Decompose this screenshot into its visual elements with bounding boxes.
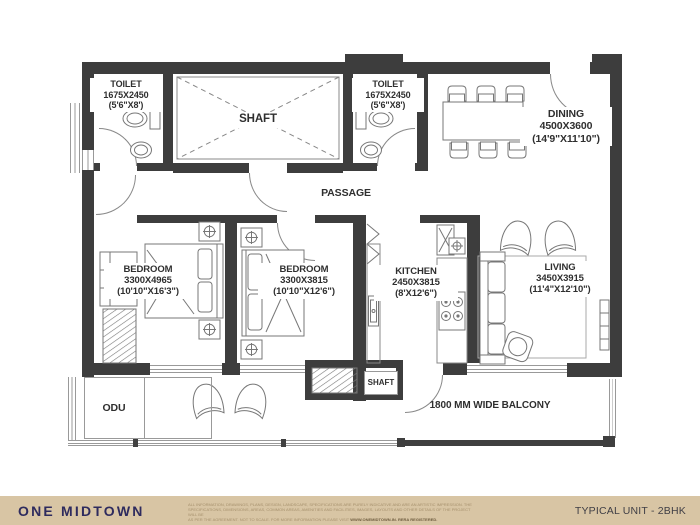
shaft-wall [305,360,403,368]
odu-divider [144,377,145,439]
room-dim-mm: 4500X3600 [520,120,612,132]
wall-segment [467,215,480,363]
disclaimer-line: SPECIFICATIONS, DIMENSIONS, AREAS, COMMO… [188,507,480,517]
disclaimer-link: WWW.ONEMIDTOWN.IN. RERA REGISTERED. [350,517,437,522]
room-name: PASSAGE [308,187,384,199]
room-name: ODU [88,402,140,414]
side-table-icon [241,340,262,359]
kitchen-counter-icon [367,244,467,363]
room-name: SHAFT [368,378,395,387]
balcony-chair-icon [234,381,269,418]
dining-label: DINING 4500X3600 (14'9"X11'10") [520,107,612,146]
living-label: LIVING 3450X3915 (11'4"X12'10") [510,261,610,297]
shaft-wall [305,360,312,400]
odu-label: ODU [88,401,140,415]
bedroom1-label: BEDROOM 3300X4965 (10'10"X16'3") [104,263,192,299]
room-name: 1800 MM WIDE BALCONY [400,400,580,412]
toilet2-label: TOILET 1675X2450 (5'6"X8') [352,78,424,112]
wall-segment [137,163,163,171]
room-dim-mm: 3450X3915 [510,273,610,284]
room-name: TOILET [352,79,424,90]
railing-post [281,439,286,447]
toilet1-label: TOILET 1675X2450 (5'6"X8') [90,78,162,112]
balcony-railing [68,377,76,440]
wall-segment [82,62,550,74]
armchair-icon [542,219,577,256]
tv-console-icon [600,300,609,350]
balcony-railing [68,440,403,446]
armchair-icon [500,219,535,256]
window [150,365,222,373]
wall-segment [287,163,343,173]
shaft-top-label: SHAFT [232,112,284,128]
wall-segment [567,363,622,377]
side-table-icon [199,320,220,339]
wall-segment [353,163,377,171]
wardrobe-icon [103,309,136,363]
room-dim-mm: 1675X2450 [90,90,162,101]
window [467,365,567,373]
room-dim-ft: (8'X12'6") [374,288,458,299]
fridge-icon [437,225,454,255]
room-name: TOILET [90,79,162,90]
wall-segment [420,215,467,223]
bedroom2-label: BEDROOM 3300X3815 (10'10"X12'6") [258,263,350,299]
unit-type-label: TYPICAL UNIT - 2BHK [575,505,686,517]
wall-segment [137,215,277,223]
room-dim-ft: (14'9"X11'10") [520,133,612,145]
room-dim-ft: (10'10"X16'3") [104,286,192,297]
railing-post [603,436,615,447]
shaft-grille-icon [312,368,357,393]
railing-post [397,438,405,447]
room-name: SHAFT [232,113,284,127]
wall-segment [82,363,150,375]
kitchen-cabinet-icon [367,224,379,264]
room-name: KITCHEN [374,266,458,277]
door-arc [249,173,287,212]
window [82,150,94,170]
passage-label: PASSAGE [308,186,384,200]
wall-segment [443,363,467,375]
wall-segment [225,215,237,363]
room-name: BEDROOM [258,264,350,275]
door-arc [99,128,137,166]
shaft-bottom-label: SHAFT [364,371,398,395]
wall-segment [345,54,403,62]
floor-plan-sheet: TOILET 1675X2450 (5'6"X8') TOILET 1675X2… [0,0,700,525]
dining-table-icon [443,86,526,158]
wall-segment [315,215,353,223]
door-arc [277,223,315,261]
door-arc [96,175,136,215]
room-name: DINING [520,108,612,120]
room-dim-mm: 3300X4965 [104,275,192,286]
sofa-icon [480,252,505,364]
room-dim-ft: (5'6"X8') [90,100,162,111]
coffee-table-icon [501,330,534,363]
side-table-icon [241,228,262,247]
balcony-railing [609,379,616,438]
room-name: BEDROOM [104,264,192,275]
wall-segment [592,54,622,62]
chimney-icon [449,238,465,254]
room-dim-mm: 2450X3815 [374,277,458,288]
disclaimer-line: AS PER THE AGREEMENT. NOT TO SCALE. FOR … [188,517,480,522]
room-dim-mm: 1675X2450 [352,90,424,101]
window [240,365,305,373]
wall-segment [82,170,94,377]
wall-segment [163,74,173,171]
disclaimer-text: ALL INFORMATION, DRAWINGS, PLANS, DESIGN… [188,502,480,522]
room-dim-mm: 3300X3815 [258,275,350,286]
railing-post [133,439,138,447]
wall-segment [415,163,428,171]
wall-segment [222,363,240,375]
kitchen-label: KITCHEN 2450X3815 (8'X12'6") [374,265,458,301]
side-table-icon [199,222,220,241]
balcony-label: 1800 MM WIDE BALCONY [400,399,580,413]
balcony-parapet [403,440,609,446]
wall-segment [173,163,249,173]
room-name: LIVING [510,262,610,273]
door-arc [377,128,415,166]
room-dim-ft: (5'6"X8') [352,100,424,111]
brand-logo: ONE MIDTOWN [18,503,145,519]
footer-bar: ONE MIDTOWN ALL INFORMATION, DRAWINGS, P… [0,496,700,525]
room-dim-ft: (10'10"X12'6") [258,286,350,297]
room-dim-ft: (11'4"X12'10") [510,284,610,295]
window [70,103,80,173]
